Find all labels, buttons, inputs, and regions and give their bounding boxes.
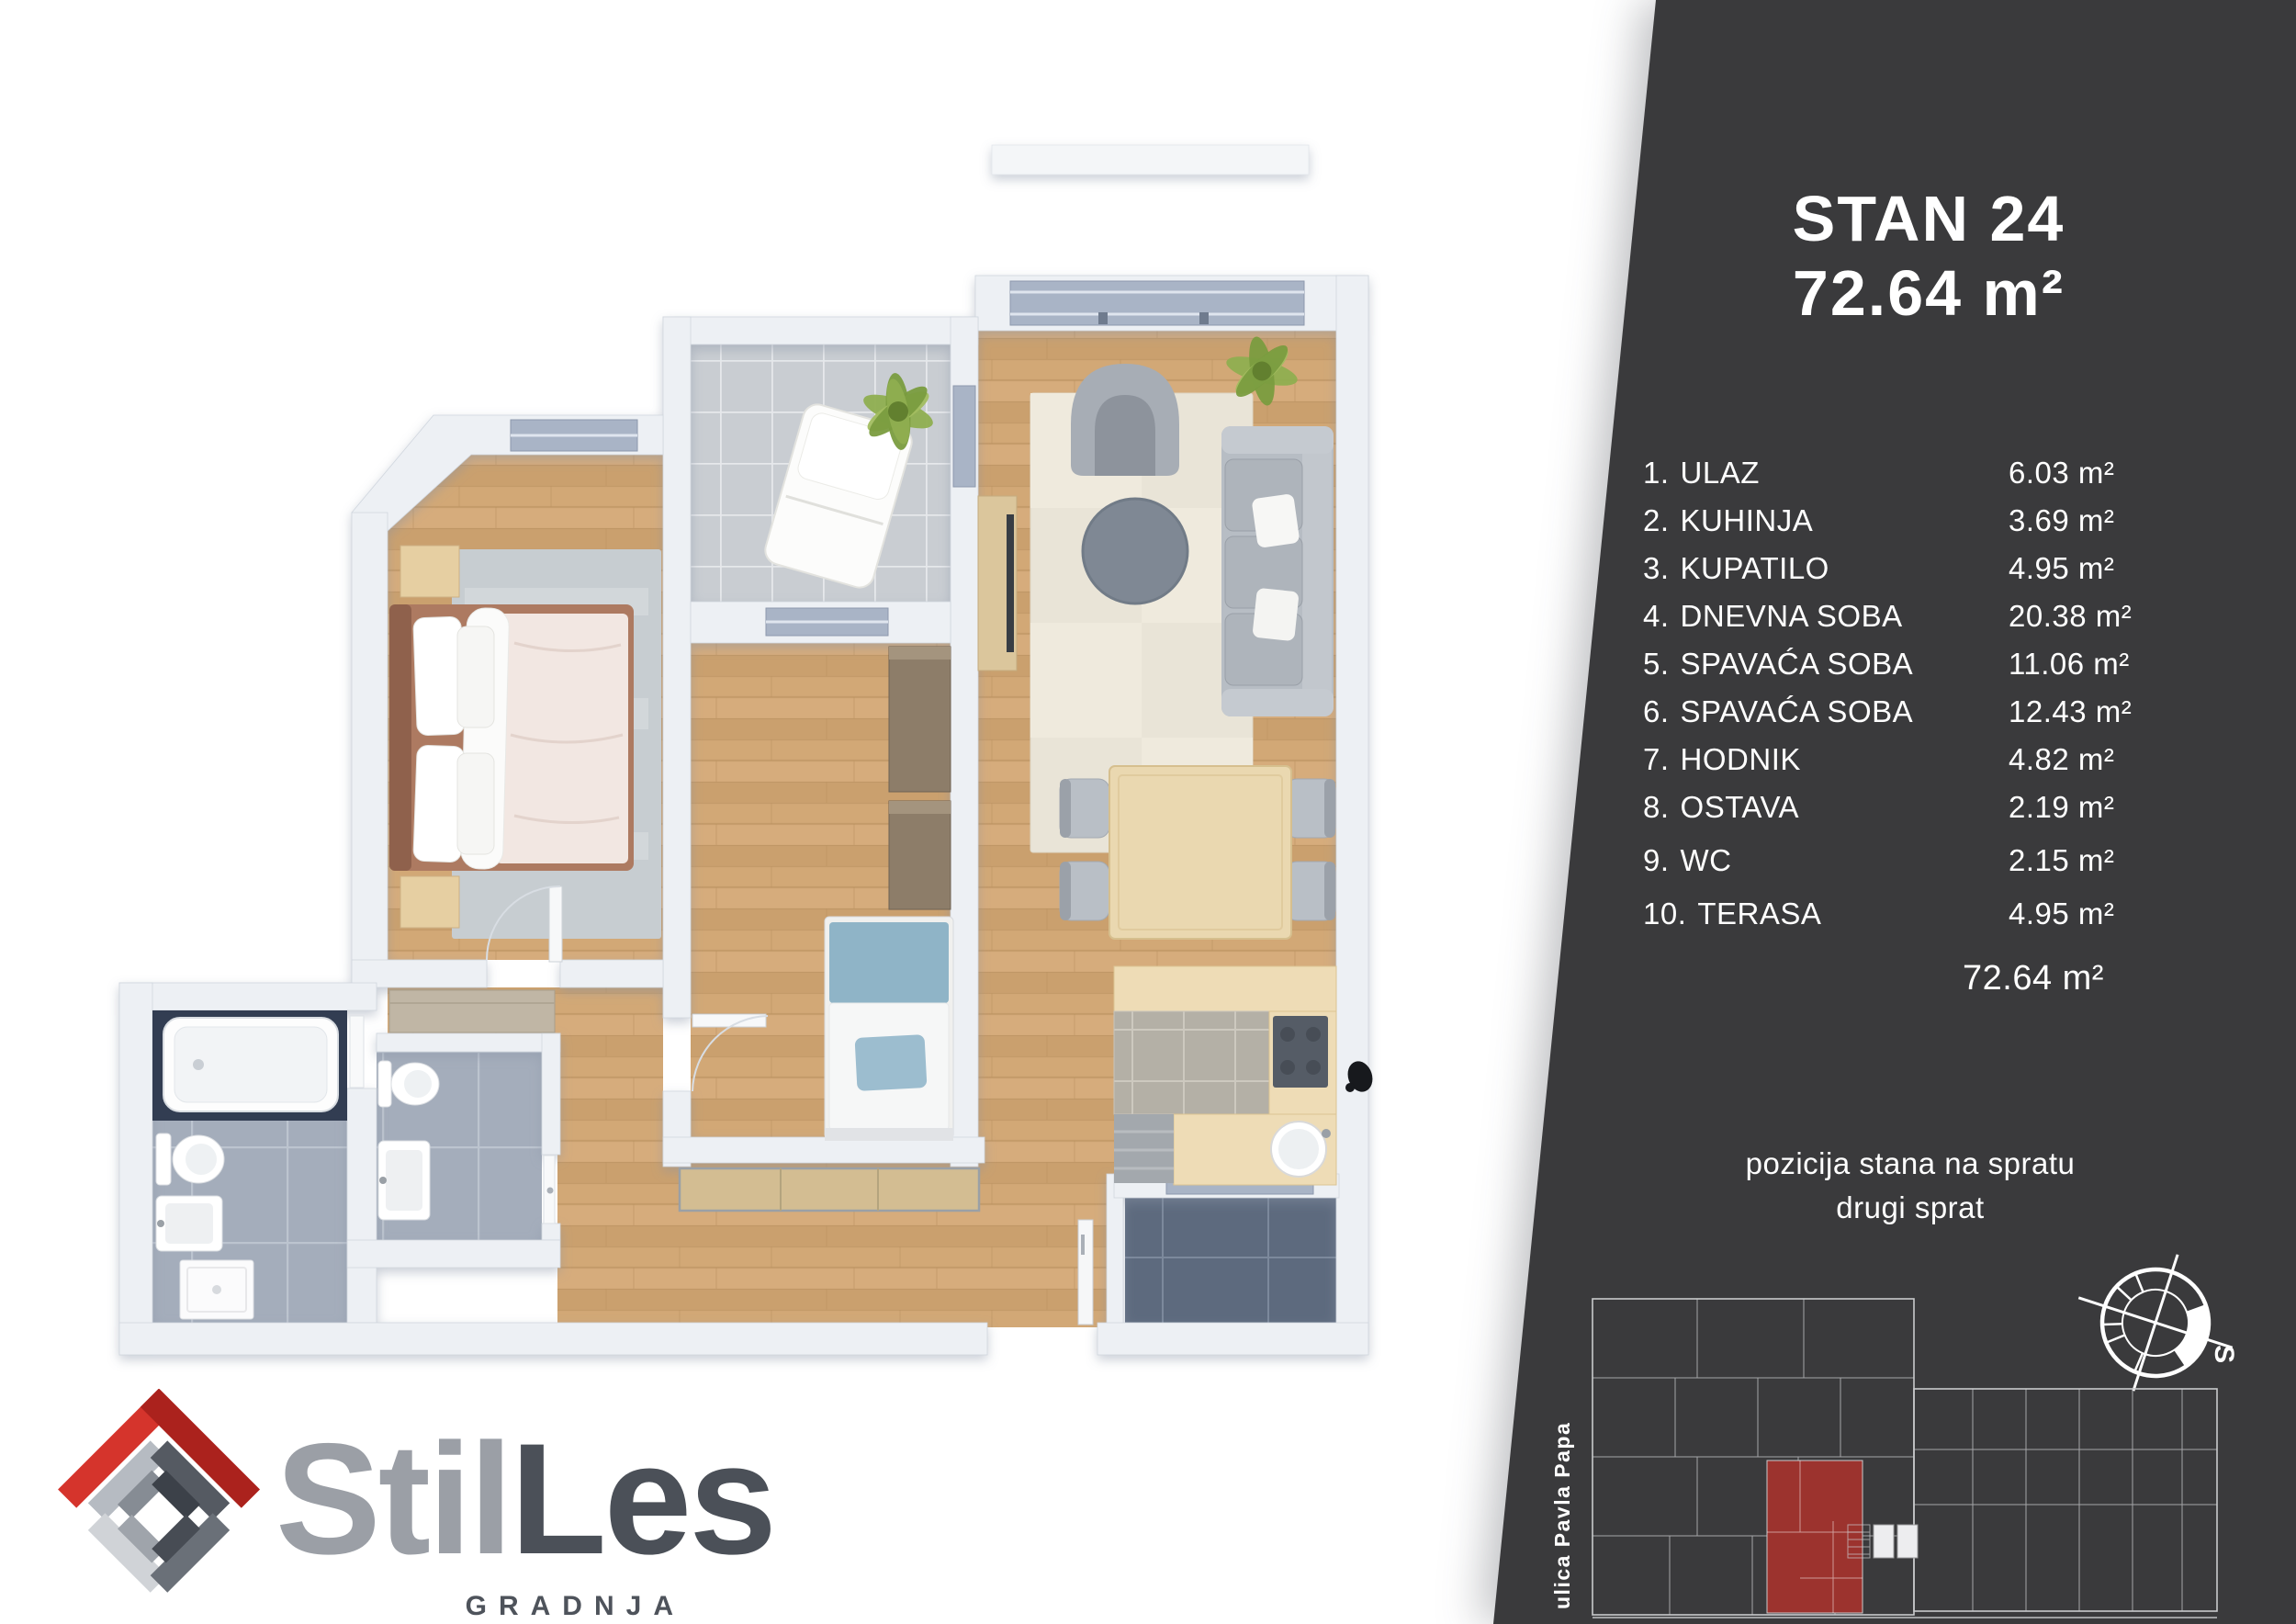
toilet: [156, 1133, 224, 1185]
logo-text-stil: Stil: [276, 1411, 511, 1587]
roof-ledge: [992, 145, 1309, 175]
wall-wc-bottom: [347, 1240, 560, 1268]
terrace-sliding-door: [953, 386, 975, 487]
nightstand: [400, 876, 459, 928]
sideboard: [680, 1168, 979, 1211]
pillow: [457, 626, 494, 727]
bathroom-door-leaf: [350, 1016, 364, 1088]
sofa-pillow: [1251, 493, 1300, 548]
wall-wc-top: [377, 1033, 560, 1052]
table-row: 7.HODNIK4.82 m²: [1643, 742, 2212, 790]
bedroom2-door-leaf: [692, 1014, 766, 1027]
floorplan-poster: STAN 24 72.64 m² 1.ULAZ6.03 m² 2.KUHINJA…: [0, 0, 2296, 1624]
dining-table: [1109, 766, 1291, 939]
position-line1: pozicija stana na spratu: [1681, 1142, 2140, 1186]
logo-wordmark: StilLes: [276, 1420, 774, 1578]
wall-bottom-right: [1097, 1323, 1368, 1355]
single-bed-blanket: [829, 922, 949, 1003]
wall-bed1-bottom-b: [560, 960, 663, 987]
elevator: [1897, 1525, 1918, 1558]
logo-subtitle: GRADNJA: [276, 1591, 685, 1622]
kitchen-counter-top: [1114, 966, 1336, 1011]
washing-machine: [180, 1260, 253, 1319]
bathroom-sink: [156, 1196, 222, 1251]
stove: [1273, 1016, 1328, 1088]
wall-wc-right-a: [542, 1033, 560, 1155]
logo-text-les: Les: [511, 1411, 774, 1587]
window-living: [1010, 281, 1304, 325]
street-label: ulica Pavla Papa: [1550, 1334, 1575, 1609]
wall-right: [1336, 276, 1368, 1352]
apartment-title: STAN 24: [1699, 182, 2158, 256]
wall-bed1-left: [352, 513, 388, 987]
wall-bottom-left: [119, 1323, 987, 1355]
sofa: [1221, 426, 1334, 716]
bedroom1-door-leaf: [549, 886, 562, 962]
toilet: [378, 1061, 439, 1107]
table-row: 1.ULAZ6.03 m²: [1643, 456, 2212, 503]
wall-terrace1-top: [663, 317, 978, 344]
faucet: [1322, 1129, 1331, 1138]
wall-bath-wc-divider: [347, 1088, 377, 1323]
single-bed-pillow: [855, 1034, 928, 1091]
total-area-row: 72.64 m²: [1643, 959, 2212, 998]
room-list: 1.ULAZ6.03 m² 2.KUHINJA3.69 m² 3.KUPATIL…: [1643, 456, 2212, 998]
table-row: 10.TERASA4.95 m²: [1643, 897, 2212, 944]
wall-bed-divider-a: [663, 317, 691, 1018]
table-row: 6.SPAVAĆA SOBA12.43 m²: [1643, 694, 2212, 742]
table-row: 4.DNEVNA SOBA20.38 m²: [1643, 599, 2212, 647]
wc-sink: [378, 1141, 430, 1220]
kitchen-floor-tiles: [1114, 1011, 1269, 1114]
entry-door-leaf: [1078, 1220, 1093, 1325]
position-line2: drugi sprat: [1681, 1186, 2140, 1230]
hall-console: [389, 990, 555, 1032]
table-row: 2.KUHINJA3.69 m²: [1643, 503, 2212, 551]
table-row: 8.OSTAVA2.19 m²: [1643, 790, 2212, 838]
pillow: [457, 753, 494, 854]
tv: [1007, 514, 1014, 652]
wardrobe: [889, 801, 951, 909]
wall-bath-left: [119, 983, 152, 1355]
nightstand: [400, 546, 459, 597]
wall-wc-right-b: [542, 1224, 560, 1240]
logo-house-icon: [53, 1389, 264, 1600]
elevator: [1874, 1525, 1894, 1558]
hallway-floor: [557, 987, 663, 1167]
table-row: 3.KUPATILO4.95 m²: [1643, 551, 2212, 599]
apartment-total-area: 72.64 m²: [1699, 256, 2158, 331]
wall-bath-top: [119, 983, 377, 1010]
wardrobe: [889, 647, 951, 792]
sofa-pillow: [1252, 588, 1299, 642]
table-row: 9.WC2.15 m²: [1643, 843, 2212, 891]
terrace-bottom-floor: [1125, 1198, 1336, 1330]
double-bed-headboard: [389, 604, 411, 871]
position-caption: pozicija stana na spratu drugi sprat: [1681, 1142, 2140, 1230]
building-position-plan: [1587, 1293, 2224, 1620]
table-row: 5.SPAVAĆA SOBA11.06 m²: [1643, 647, 2212, 694]
apartment-title-block: STAN 24 72.64 m²: [1699, 182, 2158, 331]
bedroom-1-furniture: [389, 546, 661, 962]
armchair: [1071, 364, 1179, 476]
wall-bed2-bottom: [663, 1137, 985, 1163]
